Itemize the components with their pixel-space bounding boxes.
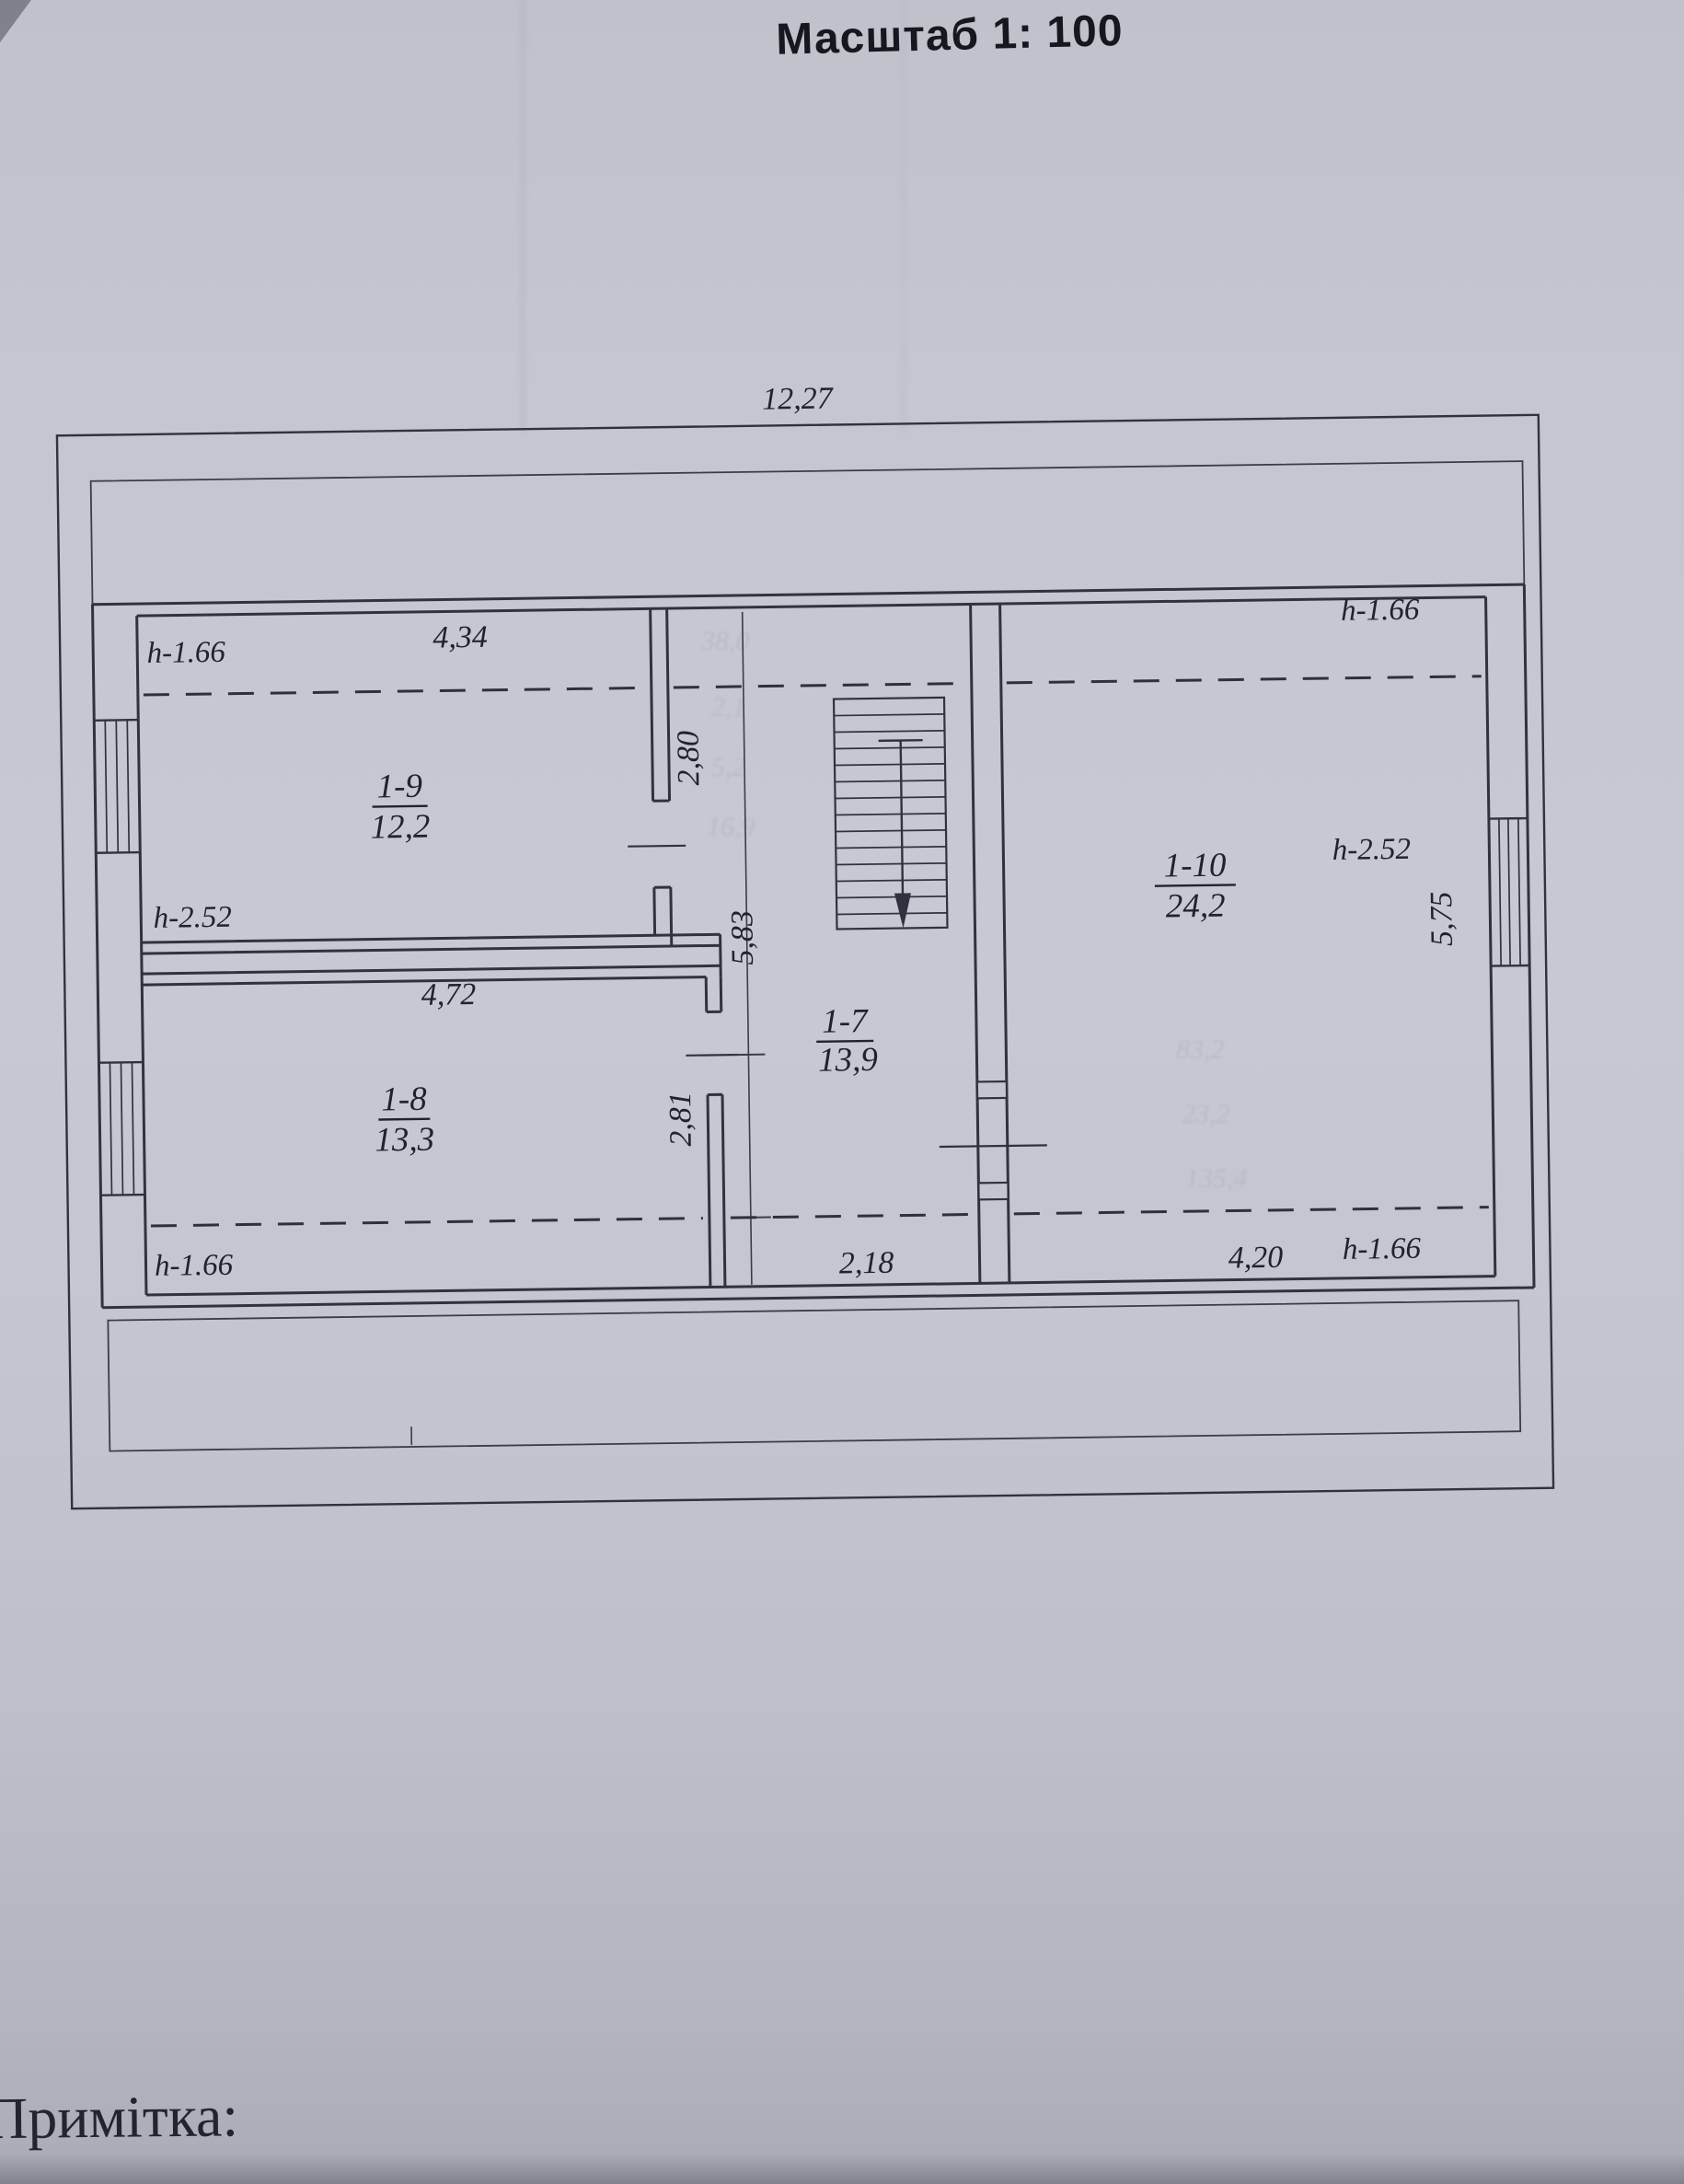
- building-outline: [57, 415, 1553, 1508]
- exterior-walls: [93, 584, 1535, 1308]
- wall-bottom-outer: [102, 1288, 1534, 1308]
- height-label-room10-top: h-1.66: [1341, 594, 1420, 628]
- wall-left-inner: [137, 616, 146, 1295]
- stair-arrow-head-icon: [894, 893, 912, 928]
- wall-room9-right-with-opening: [651, 608, 672, 946]
- width-label-corridor: 2,18: [839, 1246, 894, 1281]
- door-tick-room8: [686, 1055, 738, 1056]
- room-area-1-10: 24,2: [1166, 887, 1226, 926]
- window-room-1-8: [98, 1062, 144, 1196]
- height-label-room10-mid: h-2.52: [1332, 833, 1411, 867]
- height-label-room10-bottom: h-1.66: [1343, 1232, 1422, 1266]
- room-id-1-9: 1-9: [376, 768, 422, 806]
- door-tick-room10: [940, 1145, 1047, 1147]
- note-label: Примітка:: [0, 2083, 238, 2151]
- door-jamb-room10-upper: [977, 1081, 1007, 1098]
- window-room-1-10: [1489, 818, 1529, 966]
- depth-label-corridor: 5,83: [725, 910, 760, 965]
- wall-top-outer: [93, 584, 1525, 605]
- wall-right-inner: [1486, 597, 1495, 1277]
- depth-label-room8: 2,81: [663, 1092, 698, 1147]
- top-eave-outline: [91, 461, 1525, 605]
- width-label-room8: 4,72: [421, 977, 476, 1012]
- wall-room8-right-with-door: [706, 976, 725, 1287]
- ghost-mark: 2,1: [711, 692, 746, 722]
- page-title-scale: Масштаб 1: 100: [776, 6, 1125, 64]
- floor-plan-drawing: 12,27: [56, 372, 1553, 1508]
- floor-plan-svg: Масштаб 1: 100 38,0 2,1 5,2 16,9 83,2 23…: [0, 0, 1684, 2184]
- ghost-mark: 83,2: [1176, 1034, 1225, 1065]
- door-jamb-room10-lower: [978, 1183, 1008, 1199]
- staircase: [834, 698, 947, 930]
- room-id-underline: [1155, 884, 1236, 885]
- scanned-floor-plan-page: Масштаб 1: 100 38,0 2,1 5,2 16,9 83,2 23…: [0, 0, 1684, 2184]
- depth-label-room10: 5,75: [1424, 891, 1459, 946]
- wall-right-outer: [1524, 584, 1534, 1288]
- interior-walls: [137, 603, 1049, 1295]
- room-id-1-7: 1-7: [822, 1002, 869, 1041]
- wall-corridor-room10: [971, 604, 1009, 1283]
- room-id-underline: [378, 1119, 430, 1120]
- ghost-mark: 23,2: [1182, 1099, 1230, 1129]
- ghost-mark: 16,9: [707, 812, 755, 842]
- room-id-1-10: 1-10: [1163, 847, 1227, 885]
- ghost-mark: 5,2: [711, 752, 746, 782]
- height-label-room9-top: h-1.66: [146, 636, 225, 670]
- width-label-room9: 4,34: [433, 620, 488, 655]
- room-id-1-8: 1-8: [381, 1080, 427, 1119]
- dim-tick-2-80: [628, 846, 686, 847]
- window-room-1-9: [94, 720, 140, 853]
- height-label-room9-bottom: h-2.52: [153, 901, 232, 935]
- ghost-mark: 135,4: [1185, 1163, 1248, 1194]
- photo-bottom-shadow: [0, 2153, 1684, 2184]
- dashed-line-top: [144, 676, 1482, 695]
- room-area-1-8: 13,3: [375, 1121, 434, 1160]
- bottom-eave-outline: [108, 1300, 1520, 1450]
- stair-treads: [834, 714, 947, 915]
- windows: [94, 700, 1532, 1196]
- height-label-room8-bottom: h-1.66: [155, 1249, 234, 1283]
- room-id-underline: [373, 806, 428, 807]
- wall-left-outer: [93, 605, 103, 1308]
- width-label-room10: 4,20: [1228, 1241, 1284, 1276]
- room-area-1-7: 13,9: [818, 1041, 878, 1080]
- room-area-1-9: 12,2: [370, 808, 430, 847]
- dashed-line-bottom: [151, 1208, 1489, 1226]
- overall-width-dimension: 12,27: [762, 381, 835, 416]
- depth-label-room9: 2,80: [671, 731, 706, 786]
